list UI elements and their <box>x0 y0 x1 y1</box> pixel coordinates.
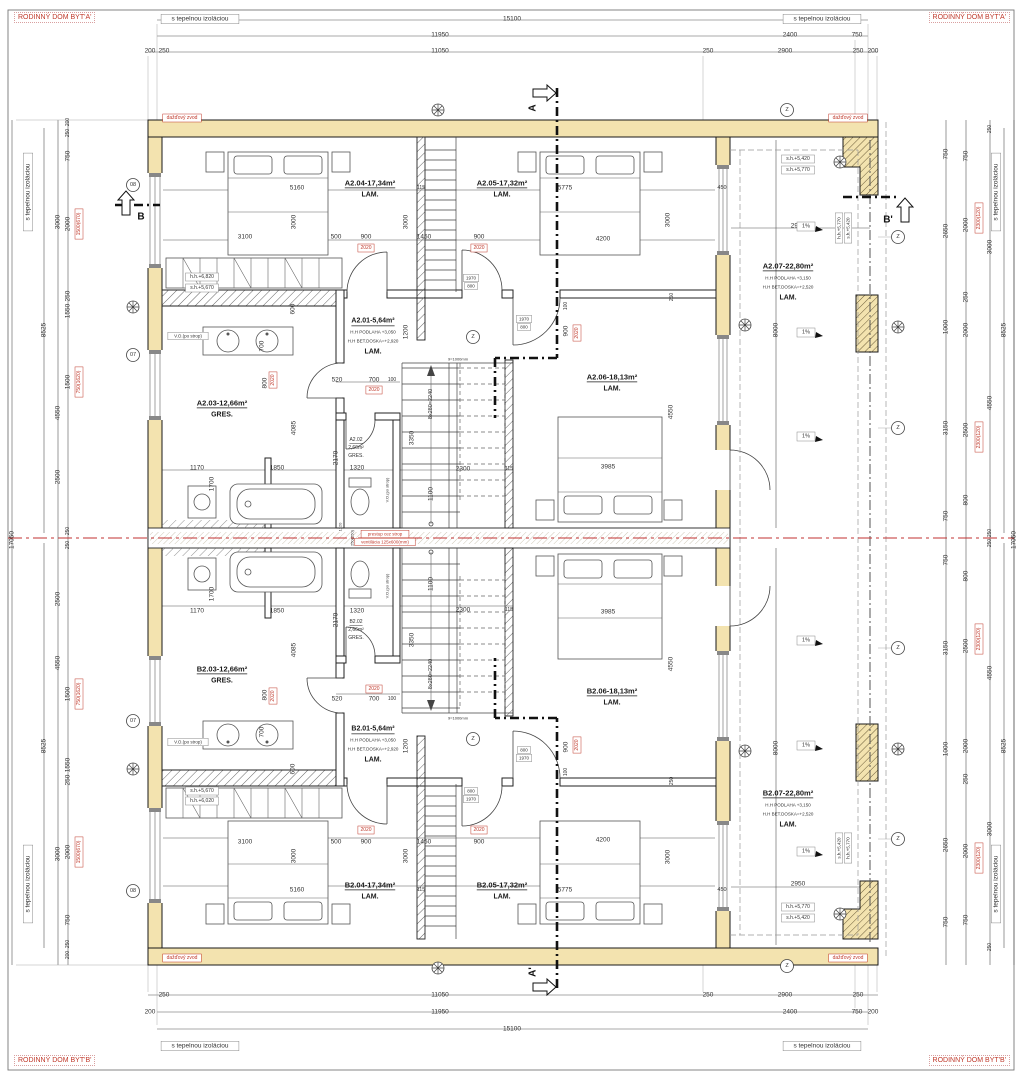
svg-text:2500: 2500 <box>55 469 62 484</box>
svg-text:3100: 3100 <box>238 234 253 241</box>
svg-text:3150: 3150 <box>943 420 950 435</box>
dim-label: LAM. <box>603 386 620 393</box>
dim-label: 900 <box>563 325 570 336</box>
svg-text:h.h.+6,020: h.h.+6,020 <box>190 798 214 804</box>
section-arrow-a <box>533 85 556 101</box>
dim-label: 250 <box>987 125 993 134</box>
svg-text:s.h.+5,670: s.h.+5,670 <box>190 788 214 794</box>
dim-label: 11950 <box>431 32 449 39</box>
svg-text:2020: 2020 <box>473 827 484 833</box>
svg-text:9=1000mm: 9=1000mm <box>448 357 469 362</box>
svg-text:1%: 1% <box>802 330 810 336</box>
svg-text:250: 250 <box>963 773 970 784</box>
dim-label: 450 <box>717 185 726 191</box>
svg-text:2000: 2000 <box>963 843 970 858</box>
dim-label: H.H PODLAHA +3,150 <box>765 276 811 281</box>
dim-label: 4550 <box>55 405 62 420</box>
dim-label: 3000 <box>987 239 994 254</box>
svg-text:2950: 2950 <box>791 881 806 888</box>
svg-text:GRES.: GRES. <box>211 412 233 419</box>
dim-label: 2020 <box>573 737 581 753</box>
svg-text:600: 600 <box>290 763 297 774</box>
svg-text:2650: 2650 <box>943 223 950 238</box>
svg-text:B2.06-18,13m²: B2.06-18,13m² <box>587 687 638 696</box>
svg-text:2500: 2500 <box>55 591 62 606</box>
svg-text:3985: 3985 <box>601 464 616 471</box>
svg-text:GRES.: GRES. <box>211 678 233 685</box>
dim-label: 3100 <box>238 839 253 846</box>
window-right-b206 <box>715 651 731 741</box>
dim-label: LAM. <box>493 894 510 901</box>
svg-text:A2.07-22,80m²: A2.07-22,80m² <box>763 262 814 271</box>
svg-text:250: 250 <box>669 293 675 302</box>
dim-label: 4550 <box>668 656 675 671</box>
svg-text:250: 250 <box>963 291 970 302</box>
svg-text:5160: 5160 <box>290 887 305 894</box>
svg-text:A2.02: A2.02 <box>349 437 362 443</box>
dim-label: 2020 <box>269 688 277 704</box>
svg-text:8525: 8525 <box>41 738 48 753</box>
svg-text:17050: 17050 <box>1011 531 1018 549</box>
svg-text:1100: 1100 <box>428 487 435 501</box>
svg-text:1500: 1500 <box>65 374 72 389</box>
room-label-a201: A2.01-5,64m² <box>351 318 395 325</box>
dim-label: 11050 <box>431 48 449 55</box>
svg-text:LAM.: LAM. <box>603 700 620 707</box>
roof-drain-icon <box>127 763 139 775</box>
dim-label: 1500(670) <box>75 209 83 239</box>
dim-label: dažďový zvod <box>829 114 868 122</box>
svg-text:8000: 8000 <box>773 740 780 755</box>
svg-text:9=1000mm: 9=1000mm <box>448 716 469 721</box>
dim-label: V.O.(po strop) <box>168 738 208 746</box>
room-label-b204: B2.04-17,34m² <box>345 881 396 890</box>
svg-text:2300(120): 2300(120) <box>976 206 982 229</box>
window-left-a203 <box>147 350 163 420</box>
dim-label: 250 <box>65 290 72 301</box>
dim-label: 5775 <box>558 185 573 192</box>
dim-label: h.h.+5,770 <box>782 903 815 911</box>
dim-label: 5160 <box>290 185 305 192</box>
dim-label: H.H BET.DOSKA=+2,920 <box>348 339 399 344</box>
dim-label: 1550 <box>65 303 72 318</box>
dim-label: 100 <box>388 377 397 383</box>
roof-drain-icon <box>834 908 846 920</box>
dim-label: 750 <box>963 914 970 925</box>
dim-label: 3000 <box>55 214 62 229</box>
vanity-sinks-a <box>203 327 293 355</box>
svg-text:750: 750 <box>852 32 863 39</box>
dim-label: 2000 <box>963 322 970 337</box>
dim-label: LAM. <box>361 894 378 901</box>
svg-text:5775: 5775 <box>558 185 573 192</box>
slope-arrow: 1% <box>797 328 823 338</box>
svg-text:LAM.: LAM. <box>361 192 378 199</box>
dim-label: 900 <box>474 839 485 846</box>
svg-text:2300(120): 2300(120) <box>976 846 982 869</box>
svg-text:prestup cez strop: prestup cez strop <box>368 532 403 537</box>
svg-text:2650: 2650 <box>943 837 950 852</box>
dim-label: 15100 <box>503 1026 521 1033</box>
dim-label: 3000 <box>987 821 994 836</box>
dim-label: 2170 <box>333 612 340 627</box>
dim-label: 750 <box>65 150 72 161</box>
dim-label: 4085 <box>291 642 298 657</box>
grid-marker: Z <box>892 833 905 846</box>
dim-label: 1170 <box>190 608 204 615</box>
svg-text:A2.01-5,64m²: A2.01-5,64m² <box>351 318 395 325</box>
svg-text:250: 250 <box>987 539 993 548</box>
roof-drain-icon <box>739 745 751 757</box>
dim-label: 250 <box>987 943 993 952</box>
dim-label: 2020 <box>358 826 374 834</box>
svg-text:2300: 2300 <box>456 607 471 614</box>
svg-text:800: 800 <box>520 325 528 330</box>
svg-text:800: 800 <box>467 789 475 794</box>
dim-label: s.h.+5,420 <box>782 914 815 922</box>
dim-label: 2500 <box>963 422 970 437</box>
dim-label: 700 <box>259 340 266 351</box>
window-left-b203 <box>147 656 163 726</box>
svg-text:4550: 4550 <box>55 405 62 420</box>
dim-label: 115 <box>417 887 425 893</box>
svg-text:s tepelnou izoláciou: s tepelnou izoláciou <box>793 16 850 23</box>
dim-label: 2,66m² <box>348 627 364 633</box>
dim-label: 8525 <box>41 738 48 753</box>
svg-text:2300(120): 2300(120) <box>976 627 982 650</box>
svg-text:900: 900 <box>474 839 485 846</box>
toilet-a <box>349 478 371 515</box>
svg-text:8525: 8525 <box>1001 322 1008 337</box>
svg-text:2400: 2400 <box>783 1009 798 1016</box>
svg-text:1%: 1% <box>802 849 810 855</box>
svg-text:1970: 1970 <box>519 317 530 322</box>
dim-label: 2020 <box>358 244 374 252</box>
dim-label: 5775 <box>558 887 573 894</box>
section-mark-b: B <box>137 212 144 223</box>
dim-label: GRES. <box>211 678 233 685</box>
svg-text:115: 115 <box>417 185 425 191</box>
svg-text:V.O.(po strop): V.O.(po strop) <box>385 477 390 502</box>
room-label-a204: A2.04-17,34m² <box>345 179 396 188</box>
svg-text:100: 100 <box>563 302 569 311</box>
dim-label: 2020 <box>471 244 487 252</box>
svg-text:5775: 5775 <box>558 887 573 894</box>
svg-text:3000: 3000 <box>291 214 298 229</box>
svg-text:900: 900 <box>474 234 485 241</box>
svg-text:2900: 2900 <box>778 992 793 999</box>
dim-label: 200 <box>145 1009 156 1016</box>
svg-text:750: 750 <box>943 510 950 521</box>
dim-label: 2020 <box>573 325 581 341</box>
svg-text:LAM.: LAM. <box>361 894 378 901</box>
dim-label: 250 <box>987 529 993 538</box>
room-label-b206: B2.06-18,13m² <box>587 687 638 696</box>
dim-label: 4200 <box>596 837 611 844</box>
dim-label: 100 <box>563 302 569 311</box>
dim-label: GRES. <box>211 412 233 419</box>
terrace-lines <box>730 122 886 958</box>
toilet-b <box>349 561 371 598</box>
svg-text:s tepelnou izoláciou: s tepelnou izoláciou <box>25 855 32 912</box>
dim-label: 200 <box>65 951 71 960</box>
svg-text:900: 900 <box>361 839 372 846</box>
svg-text:11950: 11950 <box>431 32 449 39</box>
svg-text:B2.02: B2.02 <box>349 619 362 625</box>
svg-text:08: 08 <box>130 888 136 894</box>
svg-text:H.H PODLAHA +3,050: H.H PODLAHA +3,050 <box>350 330 396 335</box>
svg-text:s.h.+5,420: s.h.+5,420 <box>846 217 851 239</box>
section-mark-a: A <box>528 104 539 111</box>
dim-label: 1500 <box>65 686 72 701</box>
dim-label: H.H PODLAHA +3,050 <box>350 738 396 743</box>
svg-text:V.O.(po strop): V.O.(po strop) <box>385 573 390 598</box>
dim-label: LAM. <box>361 192 378 199</box>
svg-text:2000: 2000 <box>65 216 72 231</box>
dim-label: V.O.(po strop) <box>385 477 390 502</box>
dim-label: 250 <box>853 48 864 55</box>
dim-label: dažďový zvod <box>163 954 202 962</box>
dim-label: 520 <box>332 696 343 703</box>
svg-text:800: 800 <box>467 284 475 289</box>
dim-label: 2000 <box>963 738 970 753</box>
svg-text:250: 250 <box>987 943 993 952</box>
svg-text:3985: 3985 <box>601 609 616 616</box>
dim-label: 4550 <box>987 395 994 410</box>
svg-text:250: 250 <box>987 125 993 134</box>
dim-label: 600 <box>290 303 297 314</box>
dim-label: 700 <box>259 726 266 737</box>
dim-label: 115 <box>505 466 513 472</box>
grid-marker: Z <box>467 331 480 344</box>
dim-label: 3985 <box>601 464 616 471</box>
dim-label: 5160 <box>290 887 305 894</box>
dim-label: s tepelnou izoláciou <box>23 153 33 231</box>
svg-text:1%: 1% <box>802 743 810 749</box>
svg-text:2,66m²: 2,66m² <box>348 627 364 633</box>
svg-text:1970: 1970 <box>519 756 530 761</box>
dim-label: 1450 <box>417 839 432 846</box>
dim-label: 750 <box>943 916 950 927</box>
dim-label: s tepelnou izoláciou <box>783 1041 861 1051</box>
svg-text:800: 800 <box>963 570 970 581</box>
dim-label: 800 <box>262 377 269 388</box>
dim-label: 2300(120) <box>975 843 983 873</box>
dim-label: dažďový zvod <box>829 954 868 962</box>
svg-text:450: 450 <box>717 887 726 893</box>
svg-text:H.H BET.DOSKA=+2,920: H.H BET.DOSKA=+2,920 <box>348 339 399 344</box>
svg-text:200: 200 <box>145 48 156 55</box>
dim-label: 1970 <box>516 754 531 762</box>
dim-label: s tepelnou izoláciou <box>991 153 1001 231</box>
svg-text:1970: 1970 <box>466 797 477 802</box>
dim-label: H.H BET.DOSKA=+2,520 <box>763 285 814 290</box>
svg-text:h.h.+5,770: h.h.+5,770 <box>837 217 842 239</box>
svg-text:B2.07-22,80m²: B2.07-22,80m² <box>763 789 814 798</box>
svg-text:h.h.+5,770: h.h.+5,770 <box>846 837 851 859</box>
dim-label: 4550 <box>55 655 62 670</box>
dim-label: 250 <box>853 992 864 999</box>
grid-marker: Z <box>467 733 480 746</box>
svg-text:2020: 2020 <box>574 327 580 338</box>
dim-label: 250 <box>669 293 675 302</box>
svg-text:700: 700 <box>369 377 380 384</box>
dim-label: 250 <box>963 773 970 784</box>
roof-drain-icon <box>892 743 904 755</box>
slope-arrow: 1% <box>797 847 823 857</box>
svg-text:GRES.: GRES. <box>348 453 364 459</box>
dim-label: 250 <box>65 527 71 536</box>
svg-text:4550: 4550 <box>668 404 675 419</box>
dim-label: 250 <box>987 539 993 548</box>
dim-label: 2950 <box>791 881 806 888</box>
bed-a204 <box>206 152 350 255</box>
svg-text:750: 750 <box>943 916 950 927</box>
dim-label: 1970 <box>516 315 531 323</box>
svg-text:8525: 8525 <box>1001 738 1008 753</box>
dim-label: ventilácia 125x600(mm) <box>355 538 415 546</box>
svg-text:8x280=2240: 8x280=2240 <box>428 659 434 689</box>
svg-text:LAM.: LAM. <box>493 894 510 901</box>
dim-label: 115 <box>505 607 513 613</box>
svg-text:s tepelnou izoláciou: s tepelnou izoláciou <box>993 163 1000 220</box>
dim-label: 600 <box>290 763 297 774</box>
dim-label: V.O.(po strop) <box>385 573 390 598</box>
dim-label: LAM. <box>603 700 620 707</box>
dim-label: 8000 <box>773 740 780 755</box>
dim-label: 250(250) <box>350 529 355 546</box>
svg-text:dažďový zvod: dažďový zvod <box>167 955 198 961</box>
svg-text:200: 200 <box>145 1009 156 1016</box>
svg-text:3350: 3350 <box>409 430 416 445</box>
dim-label: 4550 <box>668 404 675 419</box>
dim-label: 1850 <box>270 465 285 472</box>
svg-text:s.h.+5,420: s.h.+5,420 <box>786 915 810 921</box>
svg-text:1%: 1% <box>802 434 810 440</box>
svg-text:250: 250 <box>159 992 170 999</box>
svg-text:500: 500 <box>331 234 342 241</box>
dim-label: 200 <box>868 1009 879 1016</box>
grid-marker: Z <box>892 231 905 244</box>
svg-text:5160: 5160 <box>290 185 305 192</box>
svg-text:250: 250 <box>65 541 71 550</box>
dim-label: 2400 <box>783 1009 798 1016</box>
dim-label: 2300(120) <box>975 422 983 452</box>
dim-label: s.h.+5,670 <box>186 787 219 795</box>
svg-text:2400: 2400 <box>783 32 798 39</box>
dim-label: 1450 <box>417 234 432 241</box>
room-label-b203: B2.03-12,66m² <box>197 665 248 674</box>
dim-label: 1170 <box>190 465 204 472</box>
svg-text:750: 750 <box>943 148 950 159</box>
svg-text:250: 250 <box>65 527 71 536</box>
bed-b204 <box>206 821 350 924</box>
svg-text:3000: 3000 <box>665 212 672 227</box>
bed-a205 <box>518 152 662 255</box>
svg-text:H.H PODLAHA +3,150: H.H PODLAHA +3,150 <box>765 803 811 808</box>
bed-b206 <box>536 554 682 659</box>
dim-label: 17050 <box>1011 531 1018 549</box>
svg-text:1000: 1000 <box>943 319 950 334</box>
bathtub-a <box>230 484 322 524</box>
svg-text:1700: 1700 <box>209 586 216 601</box>
section-arrow-b-prime <box>897 198 913 222</box>
dim-label: 450 <box>717 887 726 893</box>
dim-label: 2300(120) <box>975 203 983 233</box>
dim-label: 2020 <box>366 685 382 693</box>
svg-text:B2.01-5,64m²: B2.01-5,64m² <box>351 726 395 733</box>
svg-text:dažďový zvod: dažďový zvod <box>833 955 864 961</box>
dim-label: 2300 <box>456 607 471 614</box>
svg-text:1850: 1850 <box>270 465 285 472</box>
svg-text:h.h.+5,770: h.h.+5,770 <box>786 904 810 910</box>
grid-marker: Z <box>781 960 794 973</box>
dim-label: 9=1000mm <box>448 716 469 721</box>
svg-text:A: A <box>528 104 539 111</box>
svg-text:LAM.: LAM. <box>603 386 620 393</box>
dim-label: 1120 <box>338 522 343 531</box>
dim-label: h.h.+6,020 <box>186 797 219 805</box>
roof-drain-icon <box>432 962 444 974</box>
svg-text:4550: 4550 <box>668 656 675 671</box>
svg-text:3000: 3000 <box>403 848 410 863</box>
svg-text:250: 250 <box>853 992 864 999</box>
roof-drain-icon <box>834 156 846 168</box>
dim-label: 3350 <box>409 430 416 445</box>
dim-label: 11050 <box>431 992 449 999</box>
dim-label: 8525 <box>1001 322 1008 337</box>
svg-text:2020: 2020 <box>360 245 371 251</box>
dim-label: 500 <box>331 234 342 241</box>
svg-text:100: 100 <box>388 377 397 383</box>
dim-label: 700 <box>369 696 380 703</box>
svg-text:2000: 2000 <box>963 322 970 337</box>
room-label-a205: A2.05-17,32m² <box>477 179 528 188</box>
dim-label: 1550 <box>65 757 72 772</box>
dim-label: 200 <box>145 48 156 55</box>
svg-text:LAM.: LAM. <box>364 349 381 356</box>
dim-label: 900 <box>563 741 570 752</box>
dim-label: 750 <box>852 32 863 39</box>
dim-label: LAM. <box>364 757 381 764</box>
dim-label: 100 <box>388 696 397 702</box>
svg-text:LAM.: LAM. <box>493 192 510 199</box>
dim-label: 750 <box>943 510 950 521</box>
svg-text:2020: 2020 <box>368 387 379 393</box>
svg-text:B2.03-12,66m²: B2.03-12,66m² <box>197 665 248 674</box>
svg-text:s tepelnou izoláciou: s tepelnou izoláciou <box>171 16 228 23</box>
room-label-b205: B2.05-17,32m² <box>477 881 528 890</box>
svg-text:250: 250 <box>987 529 993 538</box>
svg-text:100: 100 <box>563 768 569 777</box>
dim-label: 800 <box>518 323 531 331</box>
section-mark-b-prime: B' <box>883 215 893 226</box>
grid-marker: 07 <box>127 715 140 728</box>
svg-text:s.h.+5,420: s.h.+5,420 <box>786 156 810 162</box>
dim-label: s.h.+5,420 <box>835 833 843 863</box>
dim-label: 3000 <box>291 214 298 229</box>
dim-label: GRES. <box>348 635 364 641</box>
svg-text:1100: 1100 <box>428 577 435 591</box>
svg-text:1500(670): 1500(670) <box>76 212 82 235</box>
svg-text:A2.05-17,32m²: A2.05-17,32m² <box>477 179 528 188</box>
svg-text:15100: 15100 <box>503 1026 521 1033</box>
svg-text:1700: 1700 <box>209 476 216 491</box>
svg-text:1970: 1970 <box>466 276 477 281</box>
dim-label: 250 <box>703 992 714 999</box>
dim-label: 1500 <box>65 374 72 389</box>
dim-label: 1970 <box>463 795 478 803</box>
